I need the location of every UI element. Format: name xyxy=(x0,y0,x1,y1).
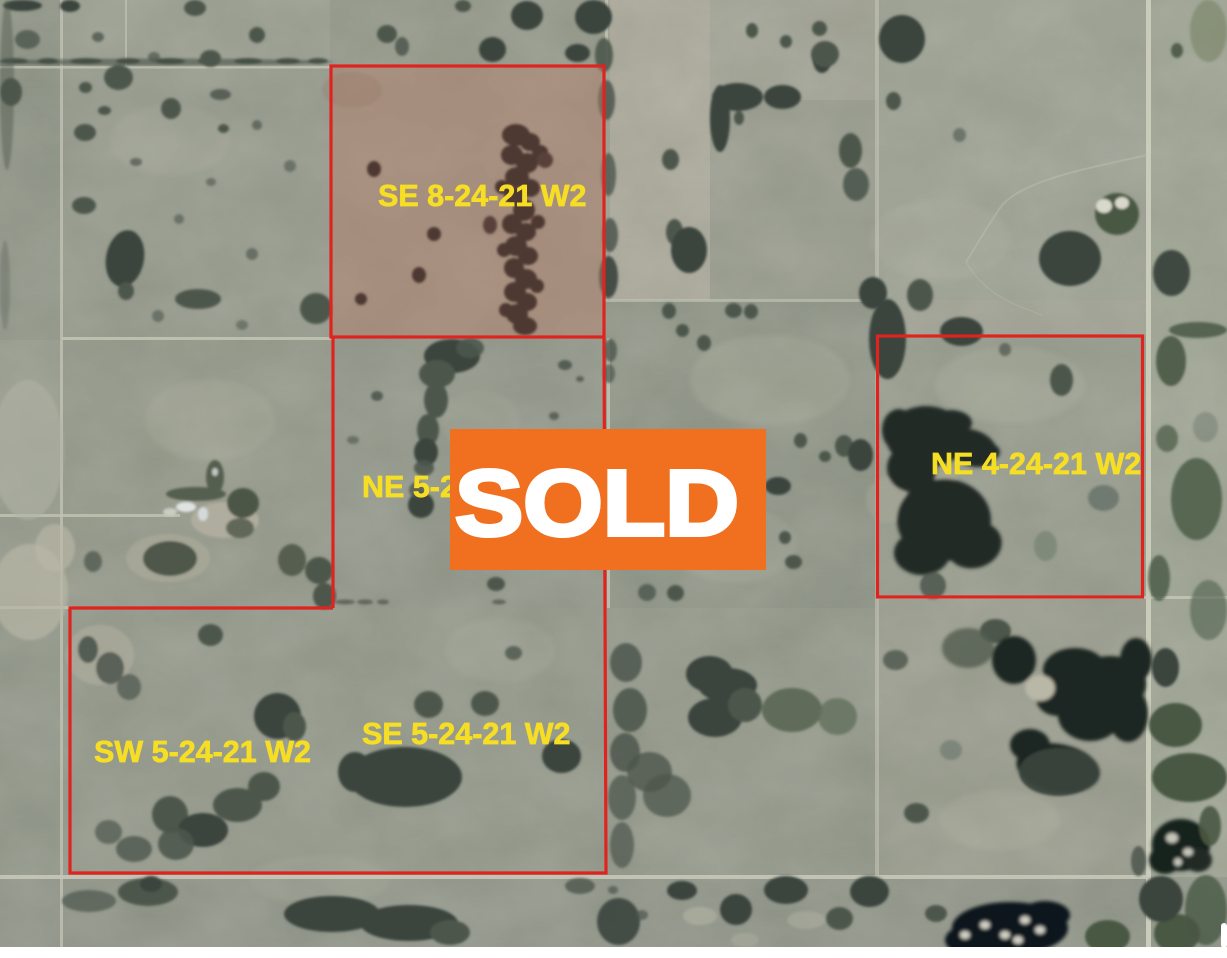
svg-text:SW 5-24-21 W2: SW 5-24-21 W2 xyxy=(94,735,311,769)
svg-text:NE 4-24-21 W2: NE 4-24-21 W2 xyxy=(931,447,1141,481)
svg-text:SOLD: SOLD xyxy=(455,451,739,555)
svg-text:SE 5-24-21 W2: SE 5-24-21 W2 xyxy=(362,717,571,751)
svg-text:SE 8-24-21 W2: SE 8-24-21 W2 xyxy=(378,179,587,213)
